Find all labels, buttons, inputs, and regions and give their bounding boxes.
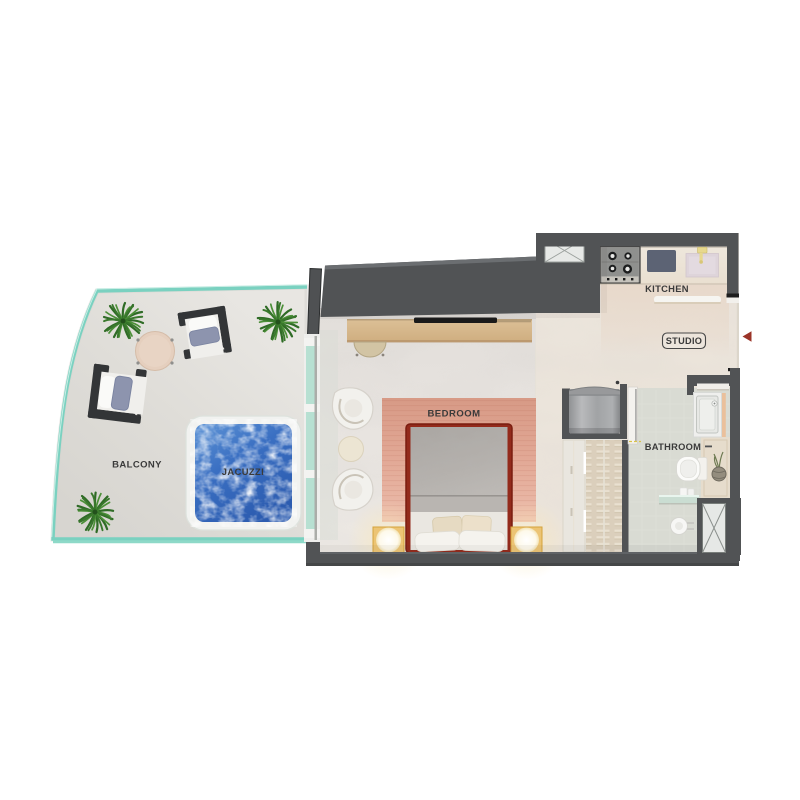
svg-text:BATHROOM: BATHROOM — [645, 442, 701, 452]
svg-text:BEDROOM: BEDROOM — [427, 409, 480, 420]
svg-text:KITCHEN: KITCHEN — [645, 283, 689, 294]
svg-text:BALCONY: BALCONY — [112, 460, 162, 471]
svg-text:JACUZZI: JACUZZI — [222, 466, 264, 477]
svg-text:STUDIO: STUDIO — [666, 336, 703, 346]
